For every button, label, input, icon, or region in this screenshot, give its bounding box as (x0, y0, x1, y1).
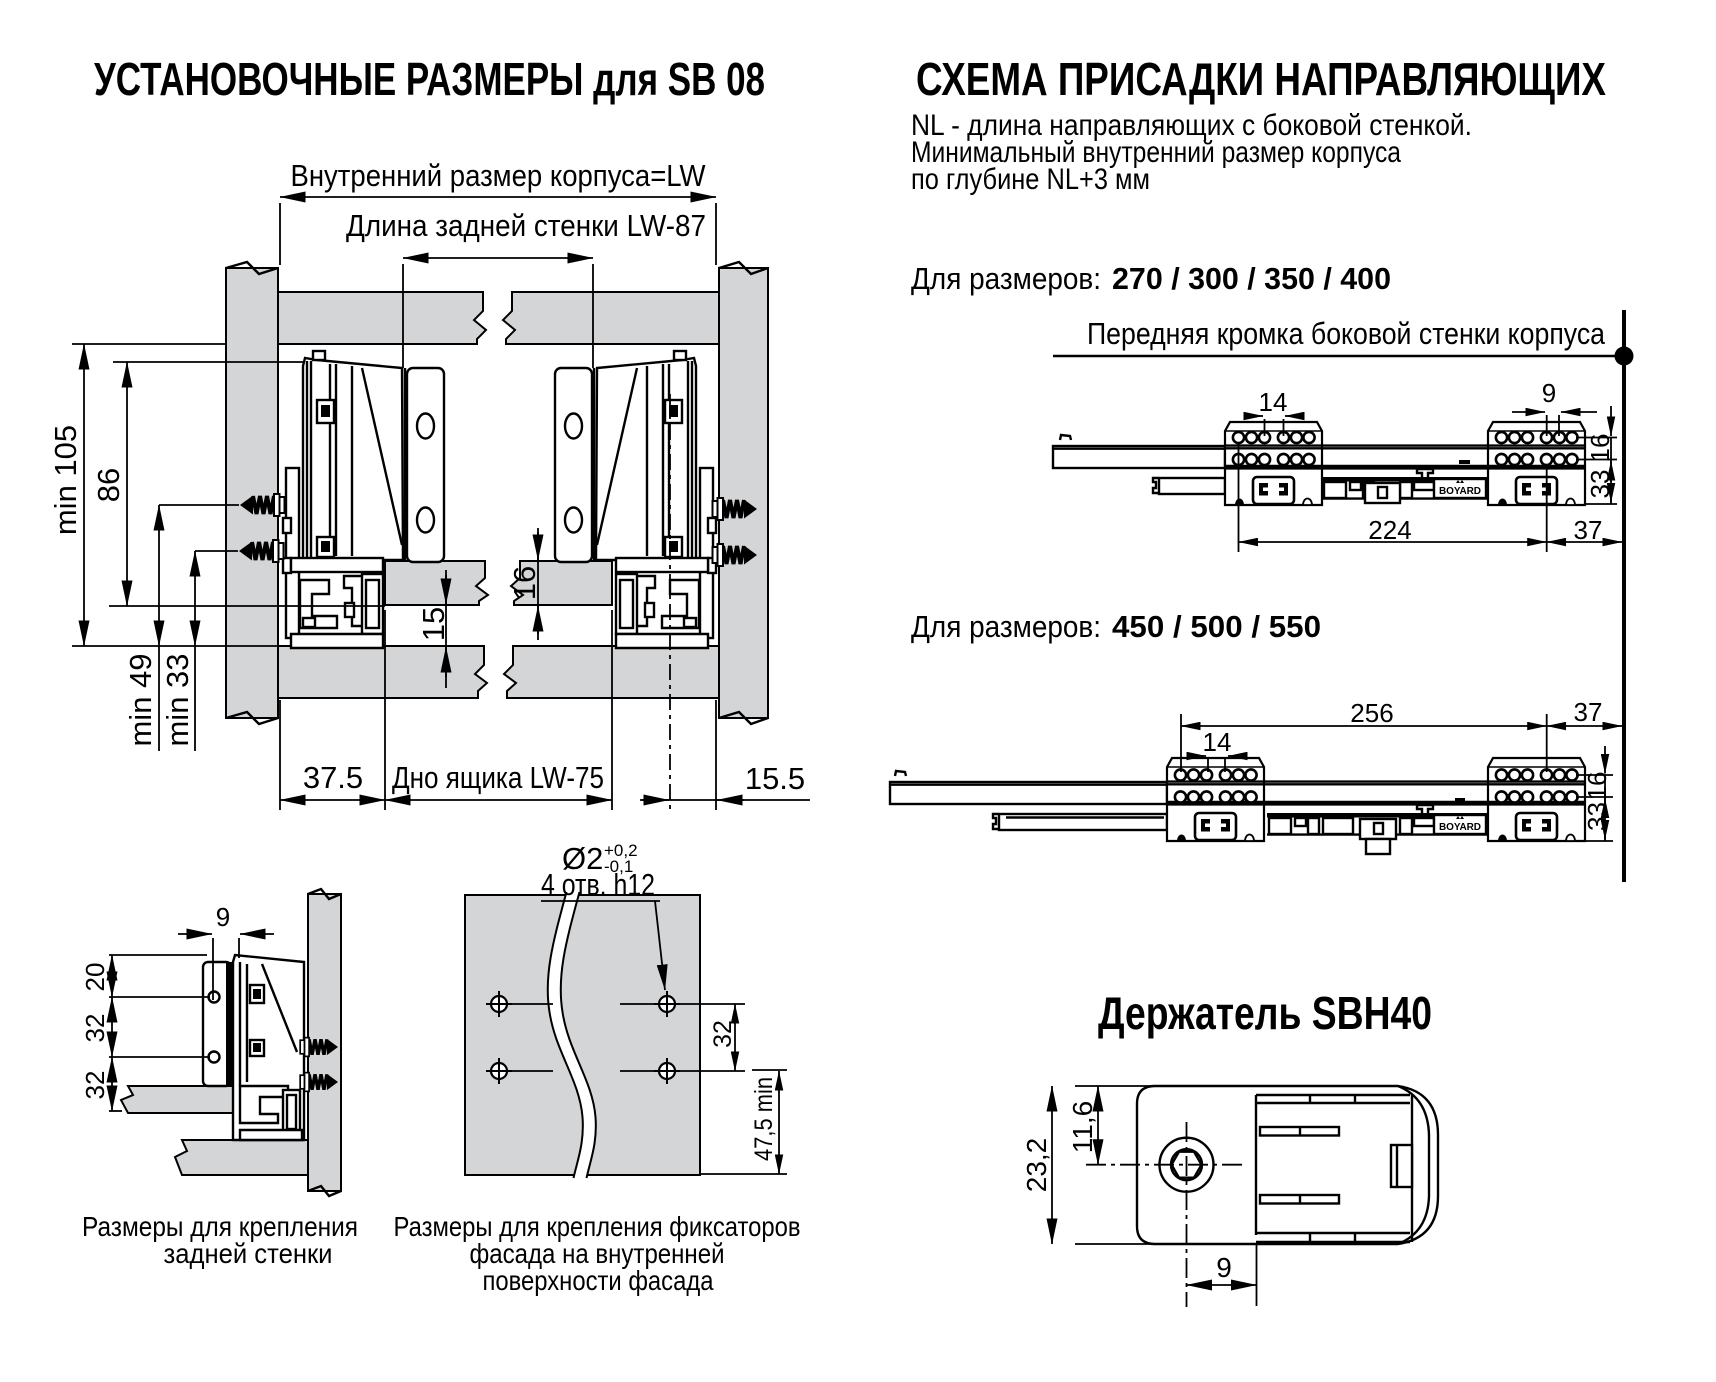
svg-text:Для размеров:: Для размеров: (911, 261, 1101, 296)
svg-text:224: 224 (1368, 515, 1411, 545)
svg-text:20: 20 (80, 963, 110, 992)
svg-text:Длина задней стенки LW-87: Длина задней стенки LW-87 (346, 208, 706, 243)
svg-text:16: 16 (1582, 772, 1612, 801)
svg-text:по глубине NL+3 мм: по глубине NL+3 мм (911, 163, 1150, 196)
svg-text:УСТАНОВОЧНЫЕ РАЗМЕРЫ для SB 08: УСТАНОВОЧНЫЕ РАЗМЕРЫ для SB 08 (94, 53, 765, 105)
svg-text:86: 86 (91, 468, 126, 502)
svg-text:37: 37 (1574, 697, 1603, 727)
svg-text:32: 32 (709, 1020, 737, 1048)
svg-text:16: 16 (507, 566, 542, 600)
svg-text:Внутренний размер корпуса=LW: Внутренний размер корпуса=LW (291, 158, 707, 193)
svg-text:Дно ящика LW-75: Дно ящика LW-75 (392, 760, 604, 795)
svg-text:min 33: min 33 (160, 653, 195, 746)
svg-text:BOYARD: BOYARD (1439, 822, 1481, 833)
svg-text:min 105: min 105 (48, 425, 83, 535)
svg-text:450 / 500 / 550: 450 / 500 / 550 (1112, 609, 1321, 644)
svg-text:32: 32 (80, 1071, 110, 1100)
svg-text:14: 14 (1203, 727, 1232, 757)
svg-text:256: 256 (1350, 698, 1393, 728)
svg-text:BOYARD: BOYARD (1439, 486, 1481, 497)
svg-text:Передняя кромка боковой стенки: Передняя кромка боковой стенки корпуса (1087, 316, 1606, 351)
svg-text:min 49: min 49 (123, 653, 158, 746)
svg-text:32: 32 (80, 1014, 110, 1043)
svg-text:9: 9 (1542, 378, 1556, 408)
svg-text:16: 16 (1585, 434, 1615, 463)
svg-text:15.5: 15.5 (745, 761, 805, 796)
svg-text:270 / 300 / 350 / 400: 270 / 300 / 350 / 400 (1112, 261, 1391, 296)
svg-text:33: 33 (1582, 802, 1612, 831)
svg-text:37.5: 37.5 (303, 760, 363, 795)
svg-text:задней стенки: задней стенки (164, 1238, 333, 1269)
svg-text:14: 14 (1259, 387, 1288, 417)
svg-text:33: 33 (1585, 470, 1615, 499)
svg-text:Для размеров:: Для размеров: (911, 609, 1101, 644)
svg-text:23,2: 23,2 (1021, 1138, 1052, 1193)
svg-text:поверхности фасада: поверхности фасада (483, 1265, 714, 1296)
svg-text:11,6: 11,6 (1067, 1101, 1098, 1153)
svg-text:9: 9 (1216, 1252, 1232, 1283)
svg-text:Держатель SBH40: Держатель SBH40 (1098, 987, 1432, 1039)
svg-text:37: 37 (1574, 515, 1603, 545)
svg-text:47,5 min: 47,5 min (750, 1077, 778, 1161)
svg-text:4 отв. h12: 4 отв. h12 (541, 867, 655, 902)
svg-text:СХЕМА ПРИСАДКИ НАПРАВЛЯЮЩИХ: СХЕМА ПРИСАДКИ НАПРАВЛЯЮЩИХ (916, 53, 1606, 105)
svg-text:9: 9 (216, 902, 230, 932)
svg-text:15: 15 (416, 607, 451, 641)
